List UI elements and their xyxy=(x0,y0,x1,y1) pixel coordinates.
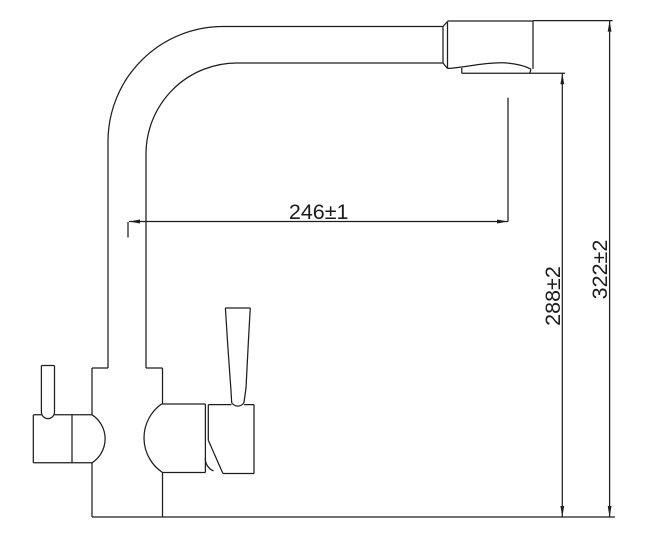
svg-text:246±1: 246±1 xyxy=(289,200,349,224)
svg-text:322±2: 322±2 xyxy=(588,240,612,300)
svg-text:288±2: 288±2 xyxy=(541,266,565,326)
